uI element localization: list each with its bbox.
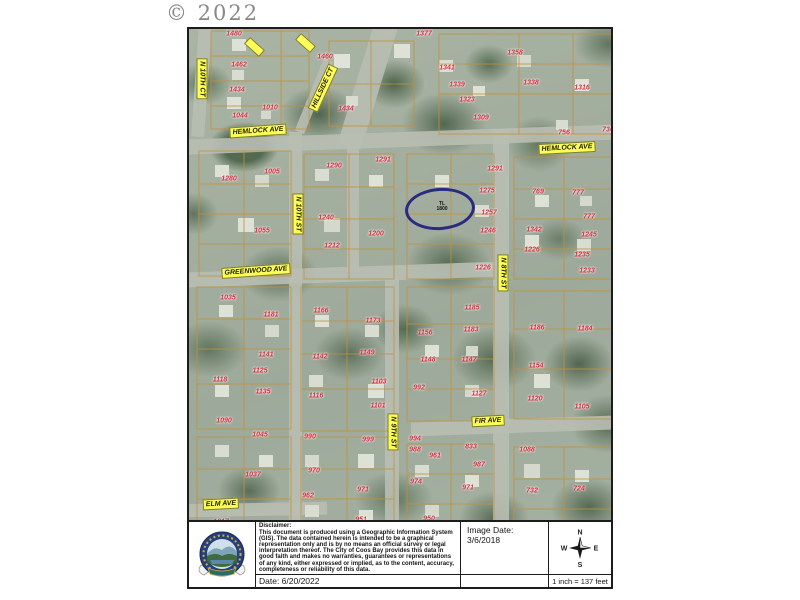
parcel-number: 724 (573, 486, 585, 493)
parcel-number: 1044 (232, 113, 248, 120)
parcel-number: 1116 (309, 393, 324, 400)
footer-imagedate-cell: Image Date: 3/6/2018 (461, 522, 549, 587)
parcel-number: 756 (558, 130, 570, 137)
parcel-number: 994 (409, 436, 421, 443)
street-label: N 10TH CT (197, 58, 208, 99)
parcel-number: 1200 (368, 231, 384, 238)
parcel-number: 971 (357, 487, 369, 494)
parcel-number: 1005 (264, 169, 280, 176)
parcel-number: 1291 (375, 157, 391, 164)
parcel-number: 1149 (359, 350, 374, 357)
imagedate-empty-row (461, 574, 548, 587)
map-document: N 10TH CTHILLSIDE CTHEMLOCK AVEHEMLOCK A… (187, 27, 613, 589)
page: { "stamp": { "copyright": "© 2022" }, "m… (0, 0, 800, 600)
parcel-number: 1183 (463, 327, 478, 334)
parcel-number: 1339 (449, 82, 465, 89)
parcel-number: 1323 (459, 97, 475, 104)
parcel-number: 1148 (420, 357, 435, 364)
parcel-number: 1035 (220, 295, 236, 302)
parcel-number: 1010 (262, 105, 278, 112)
parcel-number: 1125 (252, 368, 267, 375)
parcel-number: 1309 (473, 115, 489, 122)
compass-e: E (594, 546, 599, 553)
parcel-number: 1141 (258, 352, 273, 359)
parcel-number: 1226 (524, 247, 540, 254)
parcel-number: 990 (304, 434, 316, 441)
parcel-number: 1127 (471, 391, 486, 398)
parcel-number: 1240 (318, 215, 334, 222)
parcel-number: 1105 (574, 404, 589, 411)
parcel-number: 992 (413, 385, 425, 392)
street-label: N 10TH ST (293, 193, 304, 234)
parcel-number: 1290 (326, 163, 342, 170)
parcel-number: 1184 (577, 326, 592, 333)
compass-n: N (577, 530, 582, 537)
parcel-number: 1156 (417, 330, 432, 337)
parcel-number: 970 (308, 468, 320, 475)
footer-compass-cell: N E S W 1 inch = 137 feet (549, 522, 611, 587)
parcel-number: 1462 (231, 62, 247, 69)
compass-rose-icon: N E S W (558, 527, 602, 569)
parcel-number: 1088 (519, 447, 535, 454)
street-label: ELM AVE (203, 498, 240, 511)
parcel-number: 1342 (526, 227, 542, 234)
scale-text: 1 inch = 137 feet (549, 574, 611, 587)
parcel-number: 1212 (324, 243, 340, 250)
date-row: Date: 6/20/2022 (256, 574, 460, 587)
parcel-number: 1118 (213, 377, 228, 384)
parcel-number: 1257 (481, 210, 497, 217)
parcel-number: 1173 (365, 318, 380, 325)
map-footer: Disclaimer: This document is produced us… (189, 520, 611, 587)
parcel-number: 962 (302, 493, 314, 500)
parcel-number: 769 (532, 189, 544, 196)
parcel-number: 1055 (254, 228, 270, 235)
parcel-number: 1480 (226, 31, 242, 38)
parcel-number: 1185 (464, 305, 479, 312)
parcel-number: 1037 (245, 472, 261, 479)
parcel-number: 1434 (229, 87, 245, 94)
parcel-number: 1245 (581, 232, 597, 239)
image-date: Image Date: 3/6/2018 (461, 522, 548, 574)
parcel-number: 950 (423, 516, 435, 521)
parcel-number: 1434 (338, 106, 354, 113)
parcel-number: 1181 (263, 312, 278, 319)
parcel-number: 777 (572, 190, 584, 197)
parcel-number: 971 (462, 485, 474, 492)
parcel-number: 1275 (479, 188, 495, 195)
parcel-number: 961 (429, 453, 441, 460)
parcel-number: 1186 (529, 325, 544, 332)
footer-logo-cell (189, 522, 256, 587)
footer-disclaimer-cell: Disclaimer: This document is produced us… (256, 522, 461, 587)
aerial-map: N 10TH CTHILLSIDE CTHEMLOCK AVEHEMLOCK A… (189, 29, 611, 520)
parcel-number: 833 (465, 444, 477, 451)
parcel-number: 1101 (370, 403, 385, 410)
copyright-stamp: © 2022 (166, 1, 259, 25)
street-label: N 8TH ST (498, 254, 509, 291)
parcel-number: 1045 (252, 432, 268, 439)
parcel-number: 1142 (312, 354, 327, 361)
parcel-number: 1338 (523, 80, 539, 87)
disclaimer-title: Disclaimer: (259, 523, 291, 529)
parcel-number: 1166 (313, 308, 328, 315)
parcel-number: 1017 (213, 519, 229, 521)
parcel-number: 1460 (317, 54, 333, 61)
parcel-number: 732 (526, 488, 538, 495)
parcel-number: 974 (410, 479, 422, 486)
city-seal-logo (196, 528, 248, 582)
parcel-number: 1147 (461, 357, 476, 364)
parcel-number: 1090 (216, 418, 232, 425)
disclaimer-text: Disclaimer: This document is produced us… (256, 522, 460, 574)
street-label: N 9TH ST (388, 413, 399, 450)
parcel-number: 1377 (416, 31, 432, 38)
parcel-number: 1135 (255, 389, 270, 396)
parcel-number: 1233 (579, 268, 595, 275)
parcel-number: 1235 (574, 252, 590, 259)
parcel-number: 1154 (528, 363, 543, 370)
parcel-number: 1226 (475, 265, 491, 272)
parcel-number: 1246 (480, 228, 496, 235)
parcel-number: 736 (602, 127, 611, 134)
parcel-number: 1341 (439, 65, 455, 72)
parcel-number: 1358 (507, 50, 523, 57)
parcel-number: 777 (583, 214, 595, 221)
compass-s: S (578, 562, 583, 569)
parcel-number: 999 (362, 437, 374, 444)
compass-w: W (561, 546, 568, 553)
compass-area: N E S W (549, 522, 611, 574)
parcel-number: 1120 (527, 396, 542, 403)
disclaimer-body: This document is produced using a Geogra… (259, 530, 454, 573)
parcel-number: 988 (409, 447, 421, 454)
parcel-number: 951 (355, 517, 367, 521)
parcel-number: 1291 (487, 166, 503, 173)
parcel-number: 1280 (221, 176, 237, 183)
parcel-number: 1316 (574, 85, 590, 92)
parcel-number: 1103 (371, 379, 386, 386)
parcel-number: 987 (473, 462, 485, 469)
street-label: FIR AVE (471, 415, 504, 428)
